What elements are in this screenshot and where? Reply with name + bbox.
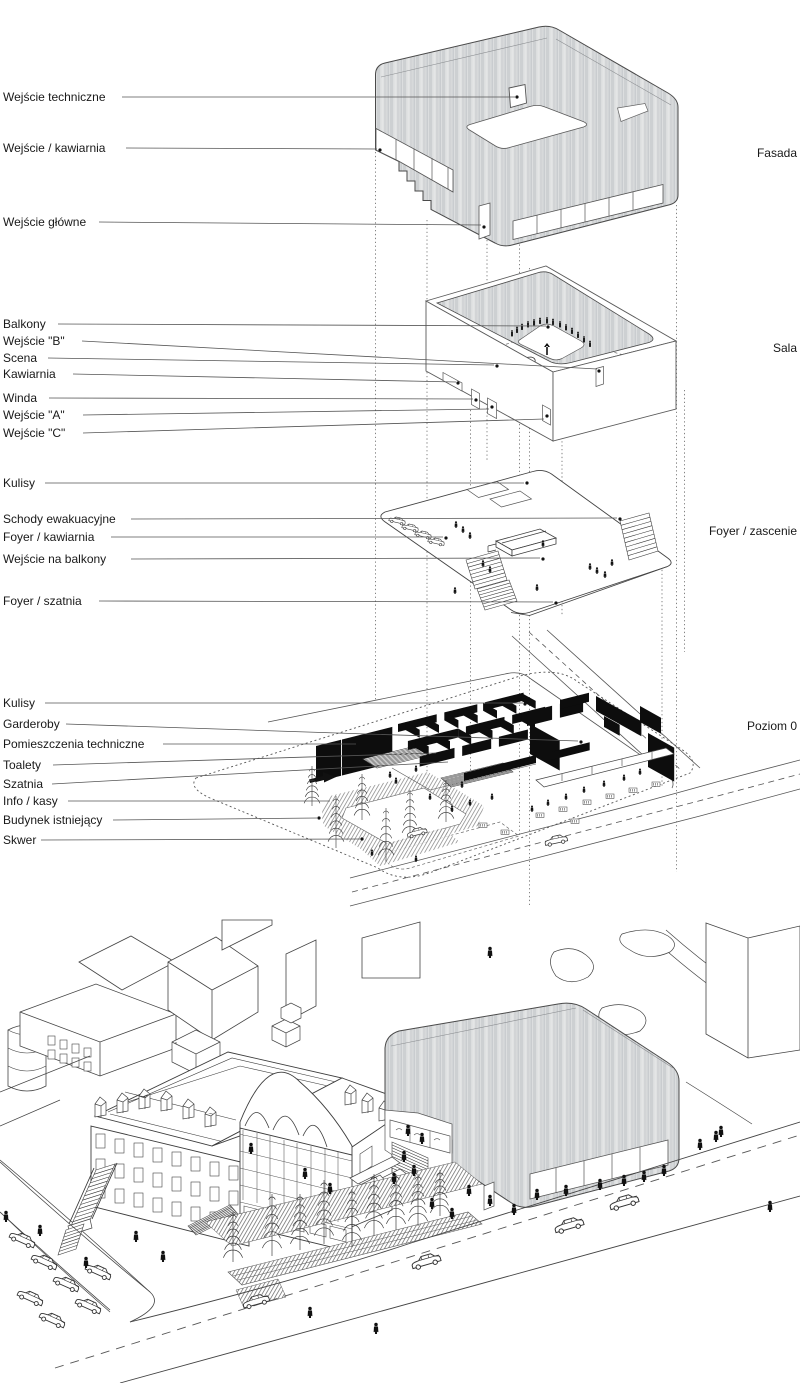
svg-text:Toalety: Toalety <box>3 758 41 772</box>
svg-text:Schody ewakuacyjne: Schody ewakuacyjne <box>3 512 116 526</box>
svg-text:Wejście techniczne: Wejście techniczne <box>3 90 106 104</box>
svg-text:Pomieszczenia techniczne: Pomieszczenia techniczne <box>3 737 145 751</box>
svg-text:Budynek istniejący: Budynek istniejący <box>3 813 102 827</box>
svg-text:Info / kasy: Info / kasy <box>3 794 58 808</box>
svg-text:Wejście / kawiarnia: Wejście / kawiarnia <box>3 141 106 155</box>
svg-text:Scena: Scena <box>3 351 37 365</box>
svg-text:Foyer / kawiarnia: Foyer / kawiarnia <box>3 530 95 544</box>
svg-text:Wejście główne: Wejście główne <box>3 215 86 229</box>
svg-text:Garderoby: Garderoby <box>3 717 60 731</box>
svg-text:Kawiarnia: Kawiarnia <box>3 367 56 381</box>
svg-text:Wejście "A": Wejście "A" <box>3 408 65 422</box>
svg-text:Balkony: Balkony <box>3 317 46 331</box>
svg-text:Wejście "B": Wejście "B" <box>3 334 65 348</box>
svg-text:Kulisy: Kulisy <box>3 476 35 490</box>
svg-text:Winda: Winda <box>3 391 37 405</box>
svg-text:Wejście na balkony: Wejście na balkony <box>3 552 106 566</box>
svg-text:Foyer / szatnia: Foyer / szatnia <box>3 594 82 608</box>
svg-text:Sala: Sala <box>773 341 797 355</box>
svg-text:Kulisy: Kulisy <box>3 696 35 710</box>
svg-text:Poziom 0: Poziom 0 <box>747 719 797 733</box>
svg-text:Fasada: Fasada <box>757 146 797 160</box>
svg-text:Foyer / zascenie: Foyer / zascenie <box>709 524 797 538</box>
svg-text:Szatnia: Szatnia <box>3 777 43 791</box>
svg-text:Wejście "C": Wejście "C" <box>3 426 65 440</box>
svg-text:Skwer: Skwer <box>3 833 36 847</box>
